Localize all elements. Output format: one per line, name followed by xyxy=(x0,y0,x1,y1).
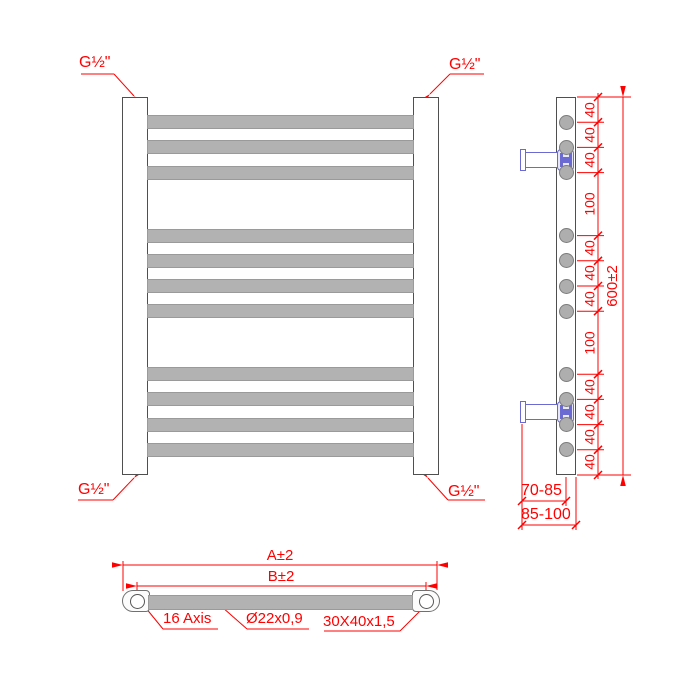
side-tube-end xyxy=(559,253,574,268)
leader-line xyxy=(400,611,420,631)
front-tube xyxy=(147,279,414,293)
side-tube-end xyxy=(559,279,574,294)
chain-dimension-label: 40 xyxy=(583,266,598,282)
leader-line xyxy=(428,478,448,500)
overall-width-dimension: A±2 xyxy=(267,548,294,564)
bottom-right-rail-bore xyxy=(419,594,434,609)
front-tube xyxy=(147,229,414,243)
chain-dimension-label: 100 xyxy=(583,331,598,354)
leader-line xyxy=(114,74,134,96)
chain-dimension-label: 40 xyxy=(583,455,598,471)
front-right-rail xyxy=(413,97,439,475)
side-tube-end xyxy=(559,228,574,243)
axis-to-axis-dimension: B±2 xyxy=(268,569,295,585)
bottom-left-rail-bore xyxy=(130,594,145,609)
side-tube-end xyxy=(559,165,574,180)
leader-line xyxy=(222,607,247,629)
side-tube-end xyxy=(559,115,574,130)
side-tube-end xyxy=(559,367,574,382)
front-tube xyxy=(147,115,414,129)
front-tube xyxy=(147,166,414,180)
chain-dimension-label: 40 xyxy=(583,152,598,168)
tube-spec-label: Ø22x0,9 xyxy=(246,611,303,627)
chain-dimension-label: 40 xyxy=(583,240,598,256)
front-tube xyxy=(147,140,414,154)
fitting-label-top-left: G½" xyxy=(79,55,110,72)
chain-dimension-label: 100 xyxy=(583,192,598,215)
wall-to-axis-dimension: 70-85 xyxy=(521,483,562,500)
leader-line xyxy=(430,74,450,94)
front-tube xyxy=(147,443,414,457)
chain-dimension-label: 40 xyxy=(583,127,598,143)
chain-dimension-label: 40 xyxy=(583,404,598,420)
chain-dimension-label: 40 xyxy=(583,379,598,395)
chain-dimension-label: 40 xyxy=(583,291,598,307)
front-left-rail xyxy=(122,97,148,475)
axis-leader-label: 16 Axis xyxy=(163,611,211,627)
leader-line xyxy=(113,478,134,500)
front-tube xyxy=(147,392,414,406)
front-tube xyxy=(147,367,414,381)
fitting-label-bottom-left: G½" xyxy=(78,482,109,499)
side-tube-end xyxy=(559,442,574,457)
valve-connector xyxy=(562,409,570,415)
front-tube xyxy=(147,418,414,432)
towel-radiator-technical-drawing: G½" G½" G½" G½" 404040100404040100404040… xyxy=(0,0,700,700)
bottom-tube-section xyxy=(148,595,413,610)
side-tube-end xyxy=(559,304,574,319)
front-tube xyxy=(147,254,414,268)
overall-height-dimension: 600±2 xyxy=(605,265,621,307)
front-tube xyxy=(147,304,414,318)
chain-dimension-label: 40 xyxy=(583,429,598,445)
wall-to-face-dimension: 85-100 xyxy=(521,507,571,524)
valve-body xyxy=(525,404,558,420)
valve-body xyxy=(525,152,558,168)
profile-spec-label: 30X40x1,5 xyxy=(323,614,395,630)
chain-dimension-label: 40 xyxy=(583,102,598,118)
side-tube-end xyxy=(559,417,574,432)
fitting-label-top-right: G½" xyxy=(449,57,480,74)
side-tube-end xyxy=(559,140,574,155)
side-tube-end xyxy=(559,392,574,407)
valve-connector xyxy=(562,157,570,163)
fitting-label-bottom-right: G½" xyxy=(448,484,479,501)
